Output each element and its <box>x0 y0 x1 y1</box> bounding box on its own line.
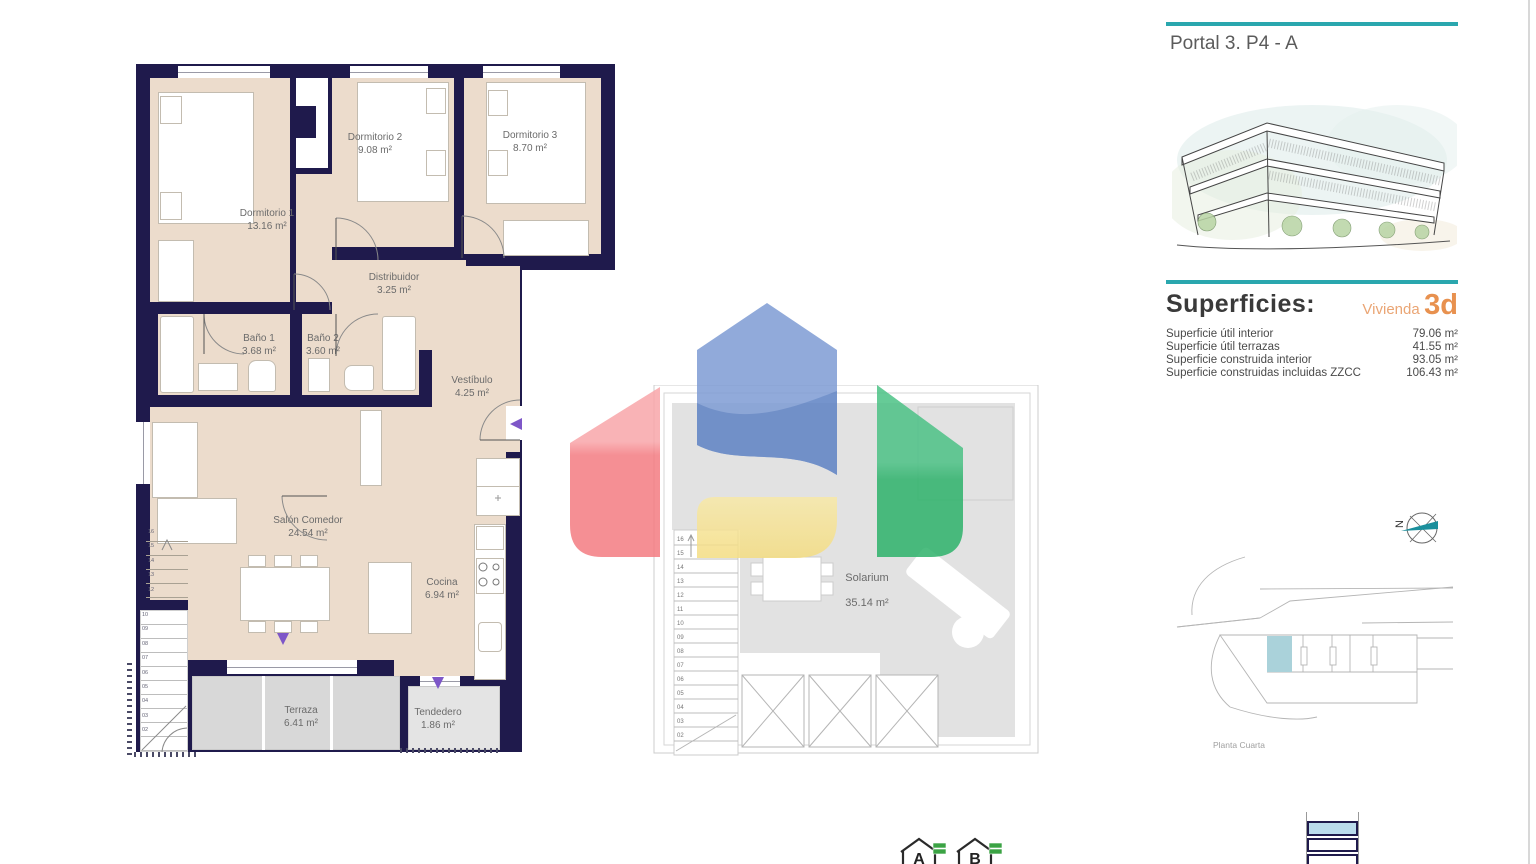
stair-step-number: 07 <box>677 663 684 669</box>
stair-step-number: 13 <box>677 579 684 585</box>
stair-step-number: 04 <box>677 705 684 711</box>
stair-step-number: 05 <box>677 691 684 697</box>
vivienda-label: Vivienda <box>1362 301 1419 318</box>
schematic-floor <box>1307 854 1358 864</box>
highlighted-unit <box>1267 636 1292 672</box>
brand-logo-watermark <box>565 295 975 570</box>
stair-marks <box>142 540 187 752</box>
page-title: Portal 3. P4 - A <box>1170 33 1298 55</box>
stair-step-number: 09 <box>677 635 684 641</box>
logo-red-house <box>570 387 660 557</box>
logo-yellow-house <box>697 497 837 558</box>
stair-step-number: 02 <box>677 733 684 739</box>
stair-step-number: 10 <box>677 621 684 627</box>
site-plan <box>1170 535 1470 750</box>
roof-hatch <box>742 675 938 747</box>
solarium-area: 35.14 m² <box>845 597 889 609</box>
stair-step-number: 11 <box>677 607 684 613</box>
north-label: N <box>1394 520 1406 528</box>
energy-rating-icons: A B <box>895 836 1025 864</box>
solarium-label: Solarium <box>845 572 888 584</box>
divider-line <box>1166 280 1458 284</box>
superficies-heading: Superficies: <box>1166 290 1315 319</box>
divider-line <box>1166 22 1458 26</box>
plan-overlay <box>132 62 617 762</box>
stair-step-number: 06 <box>677 677 684 683</box>
hob-burners <box>479 563 499 586</box>
stair-step-number: 03 <box>677 719 684 725</box>
surface-row: Superficie construida interior93.05 m² <box>1166 354 1458 366</box>
floor-schematic <box>1358 812 1359 864</box>
energy-letter: A <box>913 851 925 864</box>
page-edge-line <box>1528 0 1530 864</box>
vivienda-value: 3d <box>1424 289 1458 321</box>
logo-green-house <box>877 385 963 557</box>
surface-row: Superficie útil terrazas41.55 m² <box>1166 341 1458 353</box>
surface-row: Superficie construidas incluidas ZZCC106… <box>1166 367 1458 379</box>
floor-plan: Dormitorio 113.16 m² Dormitorio 29.08 m²… <box>132 62 617 762</box>
energy-letter: B <box>969 851 981 864</box>
site-plan-caption: Planta Cuarta <box>1213 740 1265 750</box>
building-sketch <box>1172 85 1457 270</box>
stair-step-number: 12 <box>677 593 684 599</box>
shaft-cross-icon <box>495 495 501 501</box>
brochure-page: Dormitorio 113.16 m² Dormitorio 29.08 m²… <box>0 0 1536 864</box>
surface-row: Superficie útil interior79.06 m² <box>1166 328 1458 340</box>
schematic-floor-highlight <box>1307 821 1358 836</box>
stair-step-number: 08 <box>677 649 684 655</box>
entry-arrow-icon <box>277 418 522 689</box>
schematic-floor <box>1307 838 1358 852</box>
